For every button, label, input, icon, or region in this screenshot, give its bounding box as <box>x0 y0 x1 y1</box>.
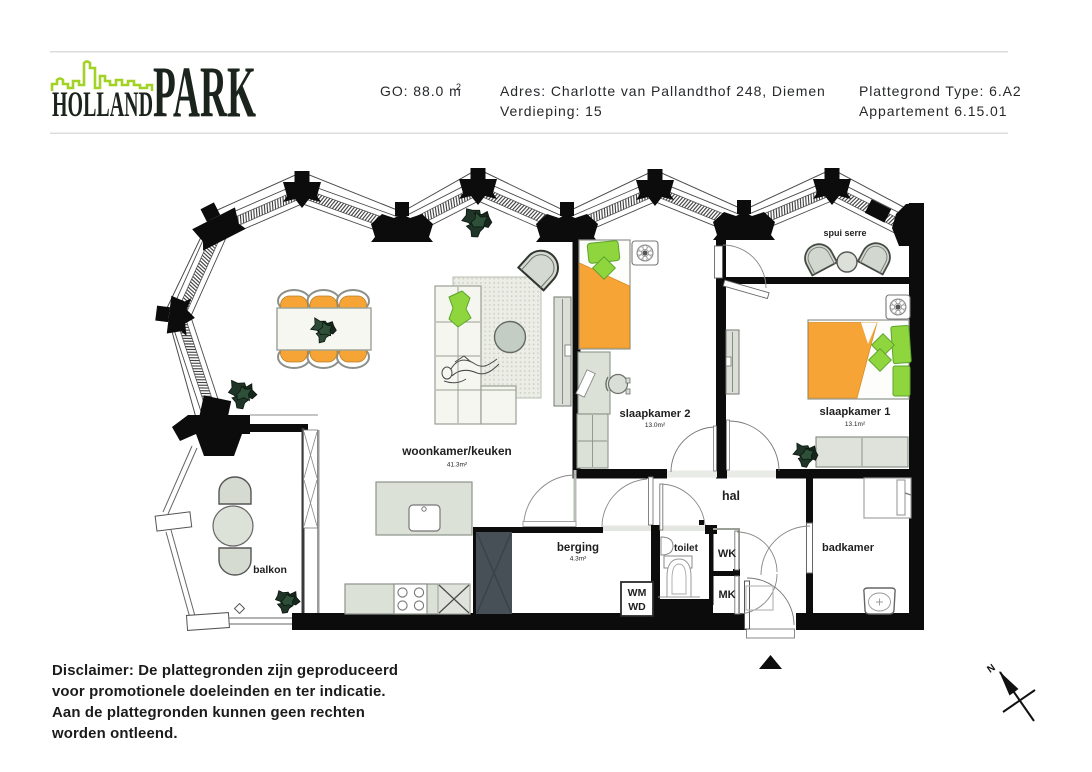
svg-text:WD: WD <box>628 601 646 613</box>
svg-text:13.0m²: 13.0m² <box>645 422 666 429</box>
svg-text:WK: WK <box>718 548 736 560</box>
svg-text:woonkamer/keuken: woonkamer/keuken <box>401 444 512 458</box>
svg-text:spui serre: spui serre <box>823 228 866 238</box>
svg-text:PARK: PARK <box>153 52 256 133</box>
svg-text:4.3m²: 4.3m² <box>570 556 587 563</box>
svg-text:Adres: Charlotte van Pallandth: Adres: Charlotte van Pallandthof 248, Di… <box>500 83 826 99</box>
svg-text:WM: WM <box>628 587 647 599</box>
svg-text:41.3m²: 41.3m² <box>447 462 468 469</box>
svg-text:voor promotionele doeleinden e: voor promotionele doeleinden en ter indi… <box>52 684 386 700</box>
svg-text:slaapkamer 1: slaapkamer 1 <box>820 406 891 418</box>
svg-text:balkon: balkon <box>253 564 287 576</box>
svg-text:Plattegrond Type: 6.A2: Plattegrond Type: 6.A2 <box>859 83 1022 99</box>
svg-text:Appartement 6.15.01: Appartement 6.15.01 <box>859 103 1007 119</box>
svg-text:berging: berging <box>557 542 599 554</box>
svg-text:badkamer: badkamer <box>822 542 875 554</box>
svg-text:slaapkamer 2: slaapkamer 2 <box>620 408 691 420</box>
svg-text:2: 2 <box>456 82 461 92</box>
svg-text:GO: 88.0 m: GO: 88.0 m <box>380 83 462 99</box>
svg-text:Disclaimer: De plattegronden z: Disclaimer: De plattegronden zijn geprod… <box>52 663 398 679</box>
svg-text:HOLLAND: HOLLAND <box>52 84 153 124</box>
svg-text:toilet: toilet <box>674 543 699 554</box>
svg-text:13.1m²: 13.1m² <box>845 421 866 428</box>
svg-text:MK: MK <box>718 589 735 601</box>
svg-text:Verdieping: 15: Verdieping: 15 <box>500 103 603 119</box>
svg-text:worden ontleend.: worden ontleend. <box>51 726 178 742</box>
svg-text:hal: hal <box>722 489 740 503</box>
svg-text:Aan de plattegronden kunnen ge: Aan de plattegronden kunnen geen rechten <box>52 705 365 721</box>
